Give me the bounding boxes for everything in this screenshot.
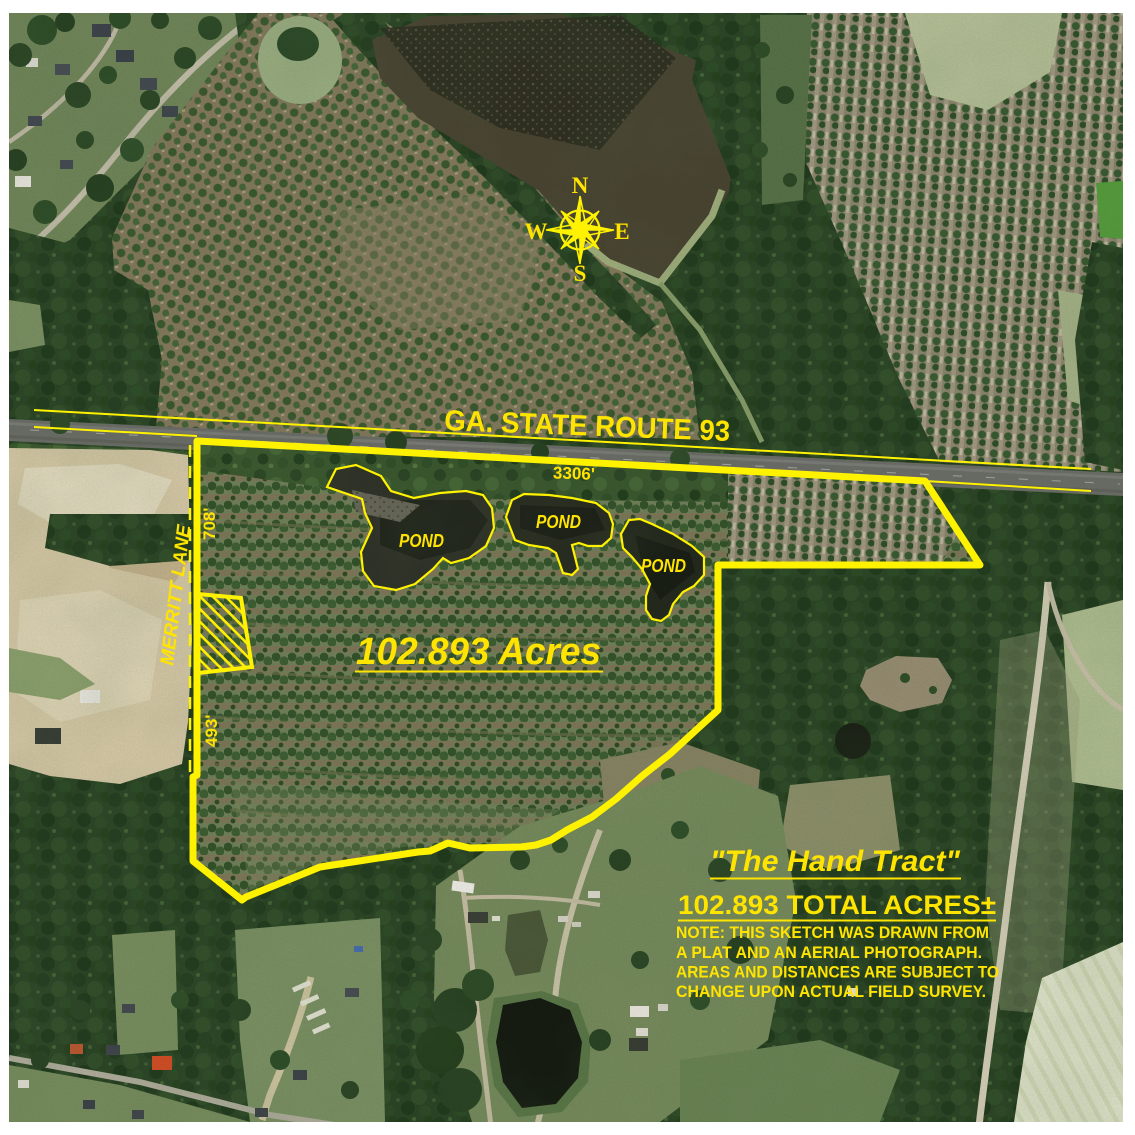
svg-text:102.893 TOTAL ACRES±: 102.893 TOTAL ACRES±	[678, 890, 996, 920]
svg-text:AREAS AND DISTANCES ARE SUBJEC: AREAS AND DISTANCES ARE SUBJECT TO	[676, 964, 999, 982]
svg-text:POND: POND	[641, 556, 686, 576]
svg-text:POND: POND	[536, 512, 581, 532]
svg-text:NOTE: THIS SKETCH WAS DRAWN FR: NOTE: THIS SKETCH WAS DRAWN FROM	[676, 924, 989, 942]
svg-text:708': 708'	[200, 508, 219, 540]
svg-text:CHANGE UPON ACTUAL FIELD SURVE: CHANGE UPON ACTUAL FIELD SURVEY.	[676, 983, 986, 1001]
svg-text:POND: POND	[399, 531, 444, 551]
svg-text:102.893 Acres: 102.893 Acres	[356, 631, 601, 673]
svg-text:3306': 3306'	[553, 463, 596, 483]
svg-text:A PLAT AND AN AERIAL PHOTOGRAP: A PLAT AND AN AERIAL PHOTOGRAPH.	[676, 944, 982, 962]
svg-text:"The Hand Tract": "The Hand Tract"	[710, 845, 961, 878]
svg-text:N: N	[572, 173, 589, 198]
svg-text:E: E	[614, 219, 629, 244]
svg-text:S: S	[574, 261, 587, 286]
svg-text:493': 493'	[202, 715, 221, 747]
svg-text:W: W	[525, 219, 548, 244]
